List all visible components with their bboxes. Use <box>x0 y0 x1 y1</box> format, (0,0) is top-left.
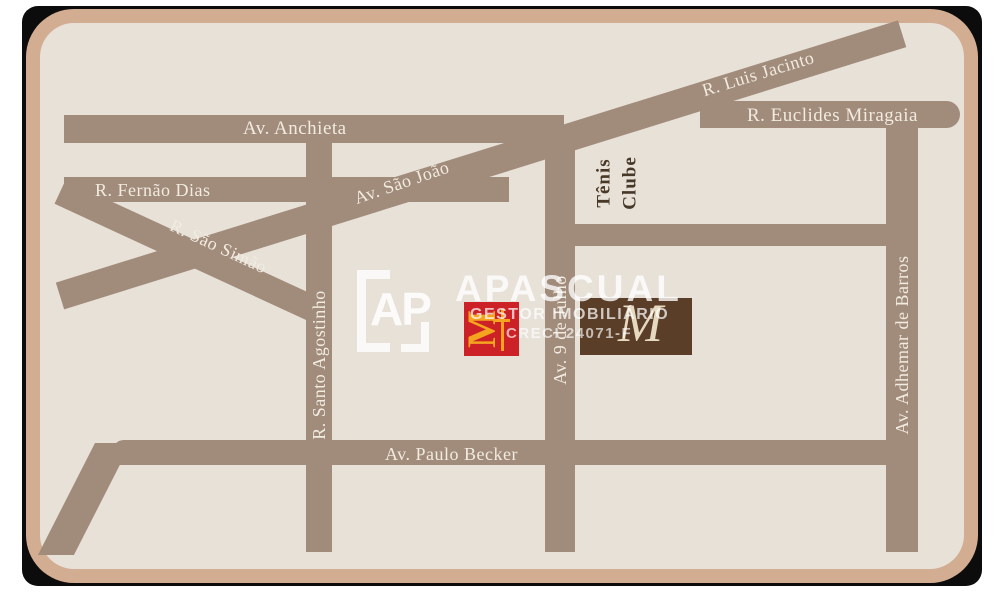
landmark-tenis-clube: Tênis Clube <box>591 156 642 210</box>
street-label-r-santo-agostinho: R. Santo Agostinho <box>310 290 328 440</box>
street-label-r-euclides-miragaia: R. Euclides Miragaia <box>747 106 918 125</box>
street-label-av-anchieta: Av. Anchieta <box>243 119 347 138</box>
location-map: Av. Anchieta R. Fernão Dias Av. São João… <box>0 0 1000 598</box>
road-tenis-clube-side-street <box>560 224 918 246</box>
logo-bracket-bottom-right-icon <box>401 322 429 352</box>
apascual-logo: AP <box>357 270 423 350</box>
tenis-clube-line1: Tênis <box>593 158 614 207</box>
tenis-clube-line2: Clube <box>619 156 640 210</box>
street-label-r-fernao-dias: R. Fernão Dias <box>95 181 210 199</box>
watermark-brand: APASCUAL <box>455 268 682 310</box>
street-label-av-paulo-becker: Av. Paulo Becker <box>385 445 518 463</box>
street-label-av-adhemar-de-barros: Av. Adhemar de Barros <box>893 256 911 435</box>
watermark-creci: CRECI 24071-F <box>506 325 632 342</box>
watermark-tagline: GESTOR IMOBILIÁRIO <box>470 306 669 324</box>
